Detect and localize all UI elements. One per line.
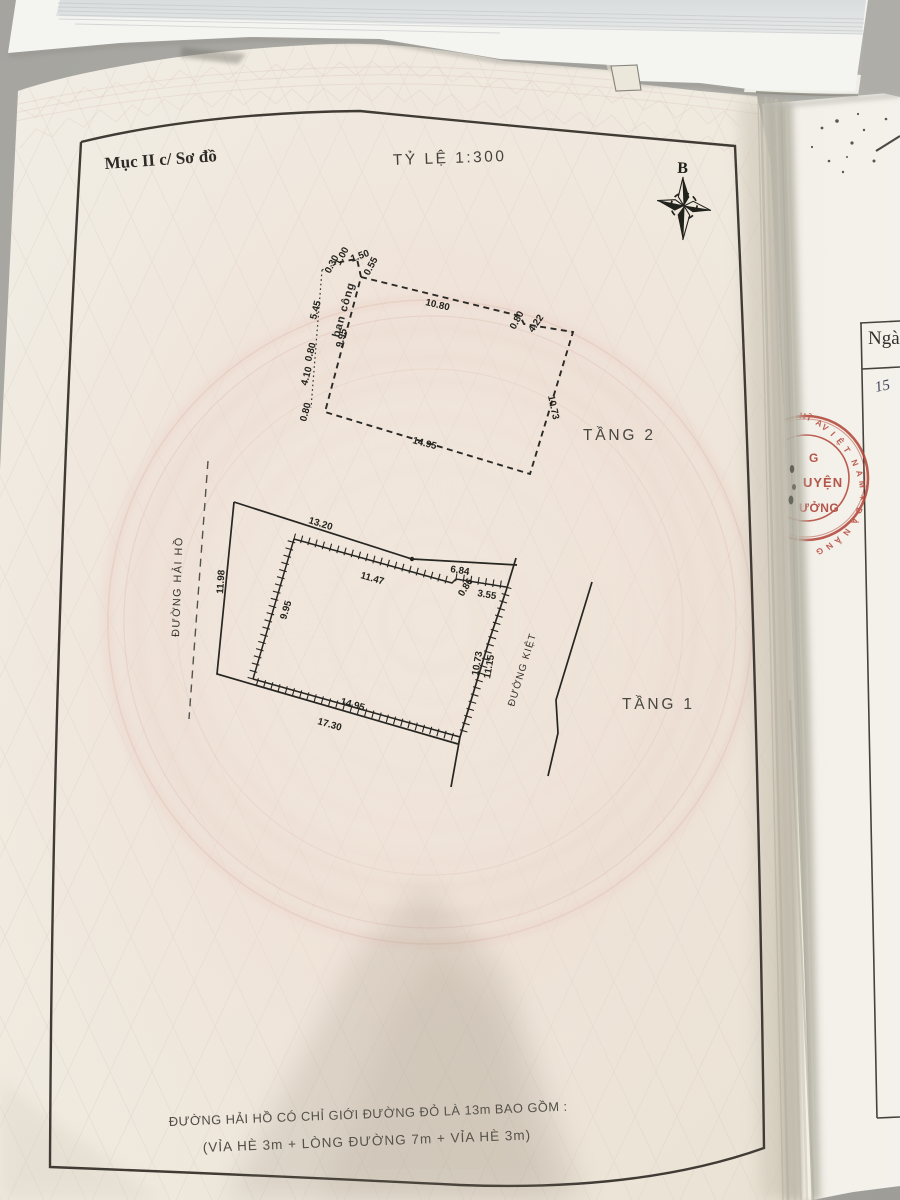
svg-text:11.98: 11.98: [215, 569, 228, 594]
svg-text:M: M: [857, 480, 868, 488]
svg-text:Ngà: Ngà: [868, 328, 900, 349]
svg-text:ƯỞNG: ƯỞNG: [799, 500, 839, 515]
svg-text:✶: ✶: [858, 494, 868, 502]
svg-text:UYỆN: UYỆN: [803, 475, 843, 490]
svg-text:TẦNG 2: TẦNG 2: [583, 427, 656, 444]
svg-text:B: B: [677, 160, 689, 177]
svg-text:G: G: [809, 451, 819, 465]
svg-text:TẦNG 1: TẦNG 1: [622, 696, 695, 713]
